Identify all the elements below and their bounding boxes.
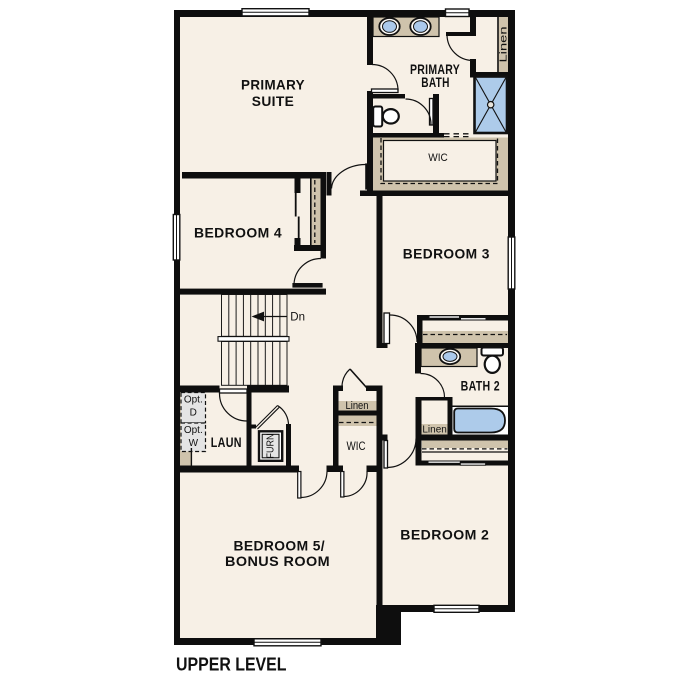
svg-text:LAUN: LAUN — [211, 434, 242, 450]
svg-text:Opt.: Opt. — [184, 425, 203, 436]
svg-text:W: W — [189, 438, 199, 449]
svg-text:Opt.: Opt. — [184, 395, 203, 406]
svg-text:Linen: Linen — [346, 400, 369, 412]
svg-text:WIC: WIC — [347, 441, 366, 453]
svg-text:PRIMARY: PRIMARY — [241, 77, 305, 93]
svg-text:BEDROOM 3: BEDROOM 3 — [403, 246, 490, 262]
svg-text:SUITE: SUITE — [252, 93, 295, 109]
svg-text:BEDROOM 4: BEDROOM 4 — [194, 225, 282, 241]
svg-text:UPPER LEVEL: UPPER LEVEL — [176, 654, 287, 674]
svg-text:Linen: Linen — [422, 423, 447, 435]
svg-text:Dn: Dn — [290, 312, 305, 324]
svg-text:Linen: Linen — [499, 27, 510, 63]
svg-text:BATH 2: BATH 2 — [461, 377, 500, 393]
svg-text:BATH: BATH — [421, 74, 450, 90]
svg-text:D: D — [190, 408, 197, 419]
svg-text:BONUS ROOM: BONUS ROOM — [225, 553, 330, 569]
svg-text:FURN: FURN — [266, 434, 277, 459]
svg-text:BEDROOM 2: BEDROOM 2 — [400, 527, 489, 543]
svg-text:WIC: WIC — [428, 152, 448, 164]
svg-text:BEDROOM 5/: BEDROOM 5/ — [234, 537, 326, 553]
